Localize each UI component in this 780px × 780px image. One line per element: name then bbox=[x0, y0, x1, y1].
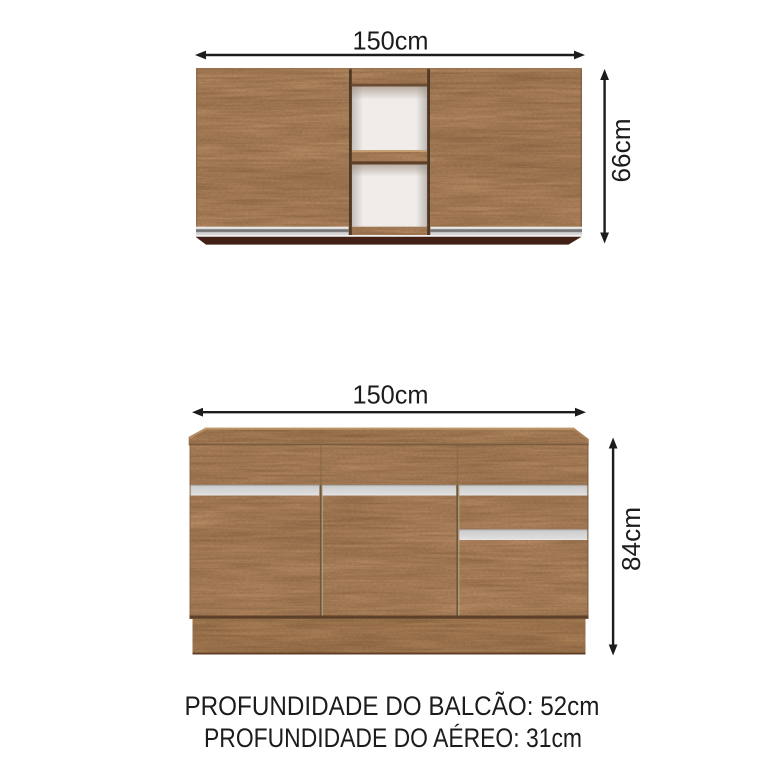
svg-text:150cm: 150cm bbox=[353, 379, 429, 409]
svg-text:84cm: 84cm bbox=[616, 507, 646, 571]
svg-text:PROFUNDIDADE DO AÉREO: 31cm: PROFUNDIDADE DO AÉREO: 31cm bbox=[204, 723, 582, 753]
svg-text:66cm: 66cm bbox=[606, 119, 636, 183]
svg-text:PROFUNDIDADE DO BALCÃO: 52cm: PROFUNDIDADE DO BALCÃO: 52cm bbox=[185, 690, 600, 721]
svg-text:150cm: 150cm bbox=[353, 25, 429, 55]
